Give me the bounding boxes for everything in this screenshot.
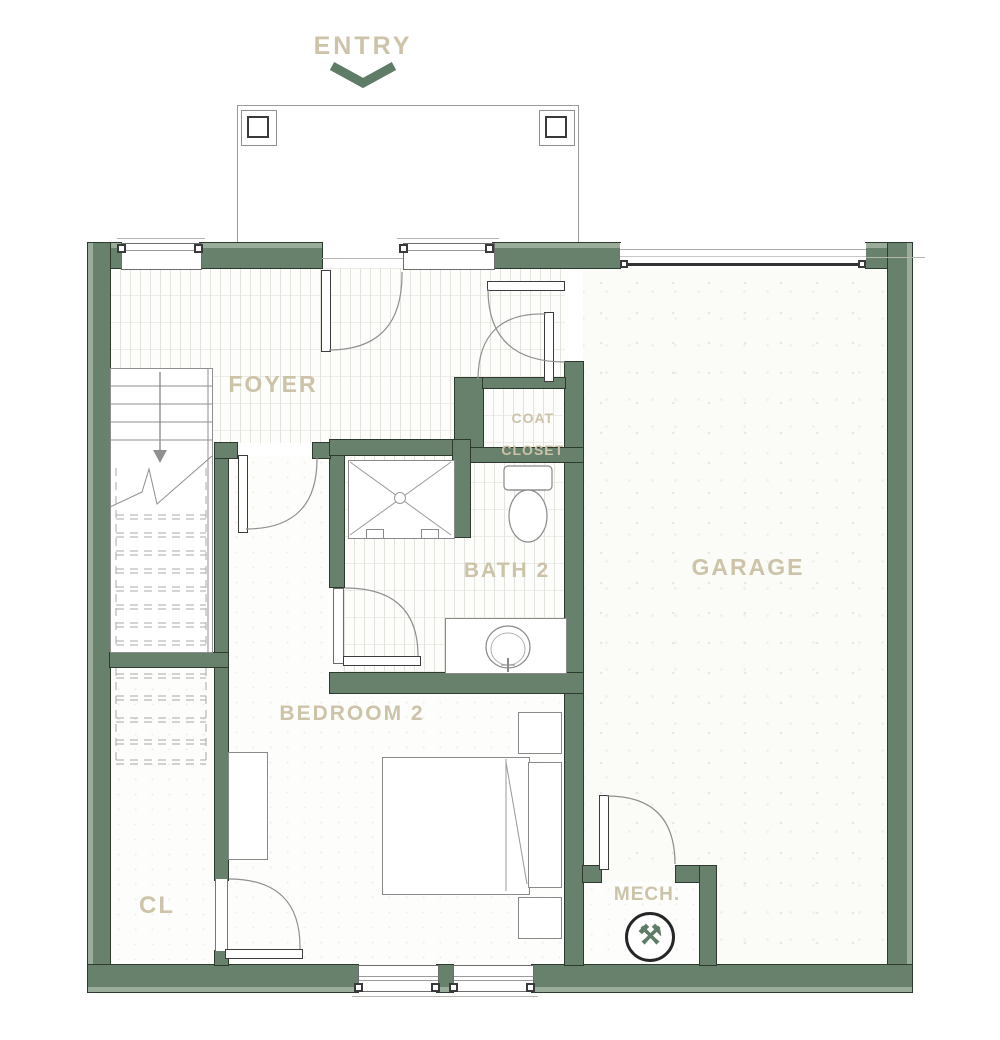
window-top-2 xyxy=(403,243,495,270)
window-bottom-1-post-left xyxy=(354,983,363,992)
window-bottom-2 xyxy=(453,965,534,992)
nightstand-bottom xyxy=(518,897,562,939)
porch-post-right-inner xyxy=(545,116,567,138)
coat-closet-label-line1: COAT xyxy=(511,410,554,426)
shower-curb-notch-1 xyxy=(366,529,384,538)
porch-post-left-inner xyxy=(247,116,269,138)
window-top-1-post-left xyxy=(117,244,126,253)
stairs-area xyxy=(110,368,213,653)
closet-label: CL xyxy=(117,892,197,920)
wall-stairs-closet-divider xyxy=(110,653,228,667)
coat-closet-door-leaf xyxy=(544,312,554,382)
wall-bath-top xyxy=(330,440,470,455)
wall-mech-right xyxy=(700,866,716,965)
shower-curb-notch-2 xyxy=(421,529,439,538)
window-top-1-post-right xyxy=(194,244,203,253)
coat-closet-label-line2: CLOSET xyxy=(501,442,564,458)
coat-closet-label: COAT CLOSET xyxy=(473,394,573,474)
mech-label: MECH. xyxy=(587,884,707,906)
entry-threshold-line xyxy=(322,258,403,259)
wall-foyer-bottom-left xyxy=(215,443,237,458)
wall-foyer-bottom-right xyxy=(313,443,330,458)
wall-right xyxy=(888,243,912,992)
bath-label: BATH 2 xyxy=(427,559,587,583)
garage-floor xyxy=(583,268,888,965)
closet-door-leaf xyxy=(225,949,303,959)
mech-tools-glyph: ⚒ xyxy=(638,920,662,950)
window-top-2-post-right xyxy=(485,244,494,253)
entry-arrow-icon xyxy=(332,66,394,83)
bedroom-door-leaf xyxy=(238,455,248,533)
nightstand-top xyxy=(518,712,562,754)
window-top-1 xyxy=(121,243,202,270)
entry-porch xyxy=(237,105,579,244)
entry-door-leaf xyxy=(321,270,331,352)
window-bottom-1 xyxy=(358,965,439,992)
bed xyxy=(382,757,530,895)
mech-tools-icon: ⚒ xyxy=(625,912,675,962)
closet-door-opening xyxy=(215,879,228,951)
closet-floor xyxy=(110,667,215,965)
window-bottom-1-post-right xyxy=(431,983,440,992)
bath-door-leaf xyxy=(343,656,421,666)
wall-top-3 xyxy=(493,243,620,268)
wall-bottom-2 xyxy=(532,965,912,992)
shower-pan xyxy=(348,460,455,539)
wall-bath-left xyxy=(330,440,344,587)
window-top-2-post-left xyxy=(399,244,408,253)
window-bottom-2-post-left xyxy=(449,983,458,992)
driveway-edge-line xyxy=(866,257,925,258)
garage-mandoor-leaf xyxy=(487,281,565,291)
bedroom-label: BEDROOM 2 xyxy=(262,702,442,726)
vanity-counter xyxy=(445,618,567,674)
wall-top-2 xyxy=(200,243,322,268)
wall-bottom-1 xyxy=(88,965,358,992)
dresser xyxy=(228,752,268,860)
garage-door xyxy=(620,243,866,268)
bed-headboard xyxy=(528,762,562,888)
floor-plan: ENTRY FOYER GARAGE BATH 2 BEDROOM 2 CL M… xyxy=(0,0,1000,1040)
garage-label: GARAGE xyxy=(648,554,848,581)
window-casing-1 xyxy=(117,238,205,239)
entry-label: ENTRY xyxy=(263,32,463,61)
window-bottom-2-post-right xyxy=(526,983,535,992)
window-casing-2 xyxy=(397,238,499,239)
foyer-label: FOYER xyxy=(193,371,353,398)
bath-door-jamb xyxy=(333,588,344,664)
wall-bath-bottom xyxy=(330,673,583,693)
mech-door-leaf xyxy=(599,795,609,870)
window-sill-line xyxy=(352,996,538,997)
wall-shower-stub xyxy=(453,440,470,537)
wall-left xyxy=(88,243,110,992)
